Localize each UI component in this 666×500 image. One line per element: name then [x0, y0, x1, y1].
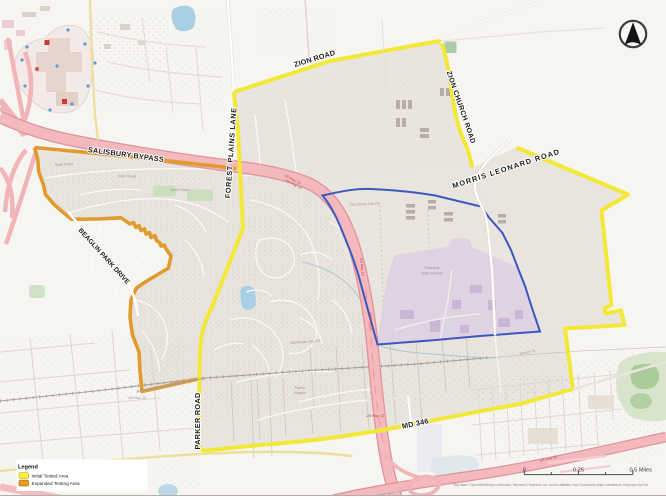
svg-text:0.25: 0.25: [573, 467, 584, 473]
svg-text:US Hwy 13: US Hwy 13: [128, 396, 146, 400]
svg-text:Legend: Legend: [18, 464, 38, 470]
svg-text:Map data © OpenStreetMap contr: Map data © OpenStreetMap contributors, M…: [453, 483, 648, 487]
svg-text:Sider Road: Sider Road: [118, 174, 136, 179]
svg-text:Heights: Heights: [294, 391, 306, 395]
svg-text:Initial Tested Area: Initial Tested Area: [32, 473, 69, 478]
svg-text:PARKER ROAD: PARKER ROAD: [193, 392, 202, 449]
svg-text:Expanded Testing Area: Expanded Testing Area: [32, 481, 81, 486]
svg-text:Sider Road: Sider Road: [170, 188, 188, 192]
svg-text:Parker: Parker: [295, 386, 306, 390]
svg-text:Parkside: Parkside: [424, 265, 440, 270]
svg-text:0.5 Miles: 0.5 Miles: [630, 467, 653, 473]
svg-text:0: 0: [523, 467, 526, 473]
svg-text:US Hwy 13: US Hwy 13: [366, 414, 384, 418]
svg-text:High School: High School: [421, 271, 443, 276]
